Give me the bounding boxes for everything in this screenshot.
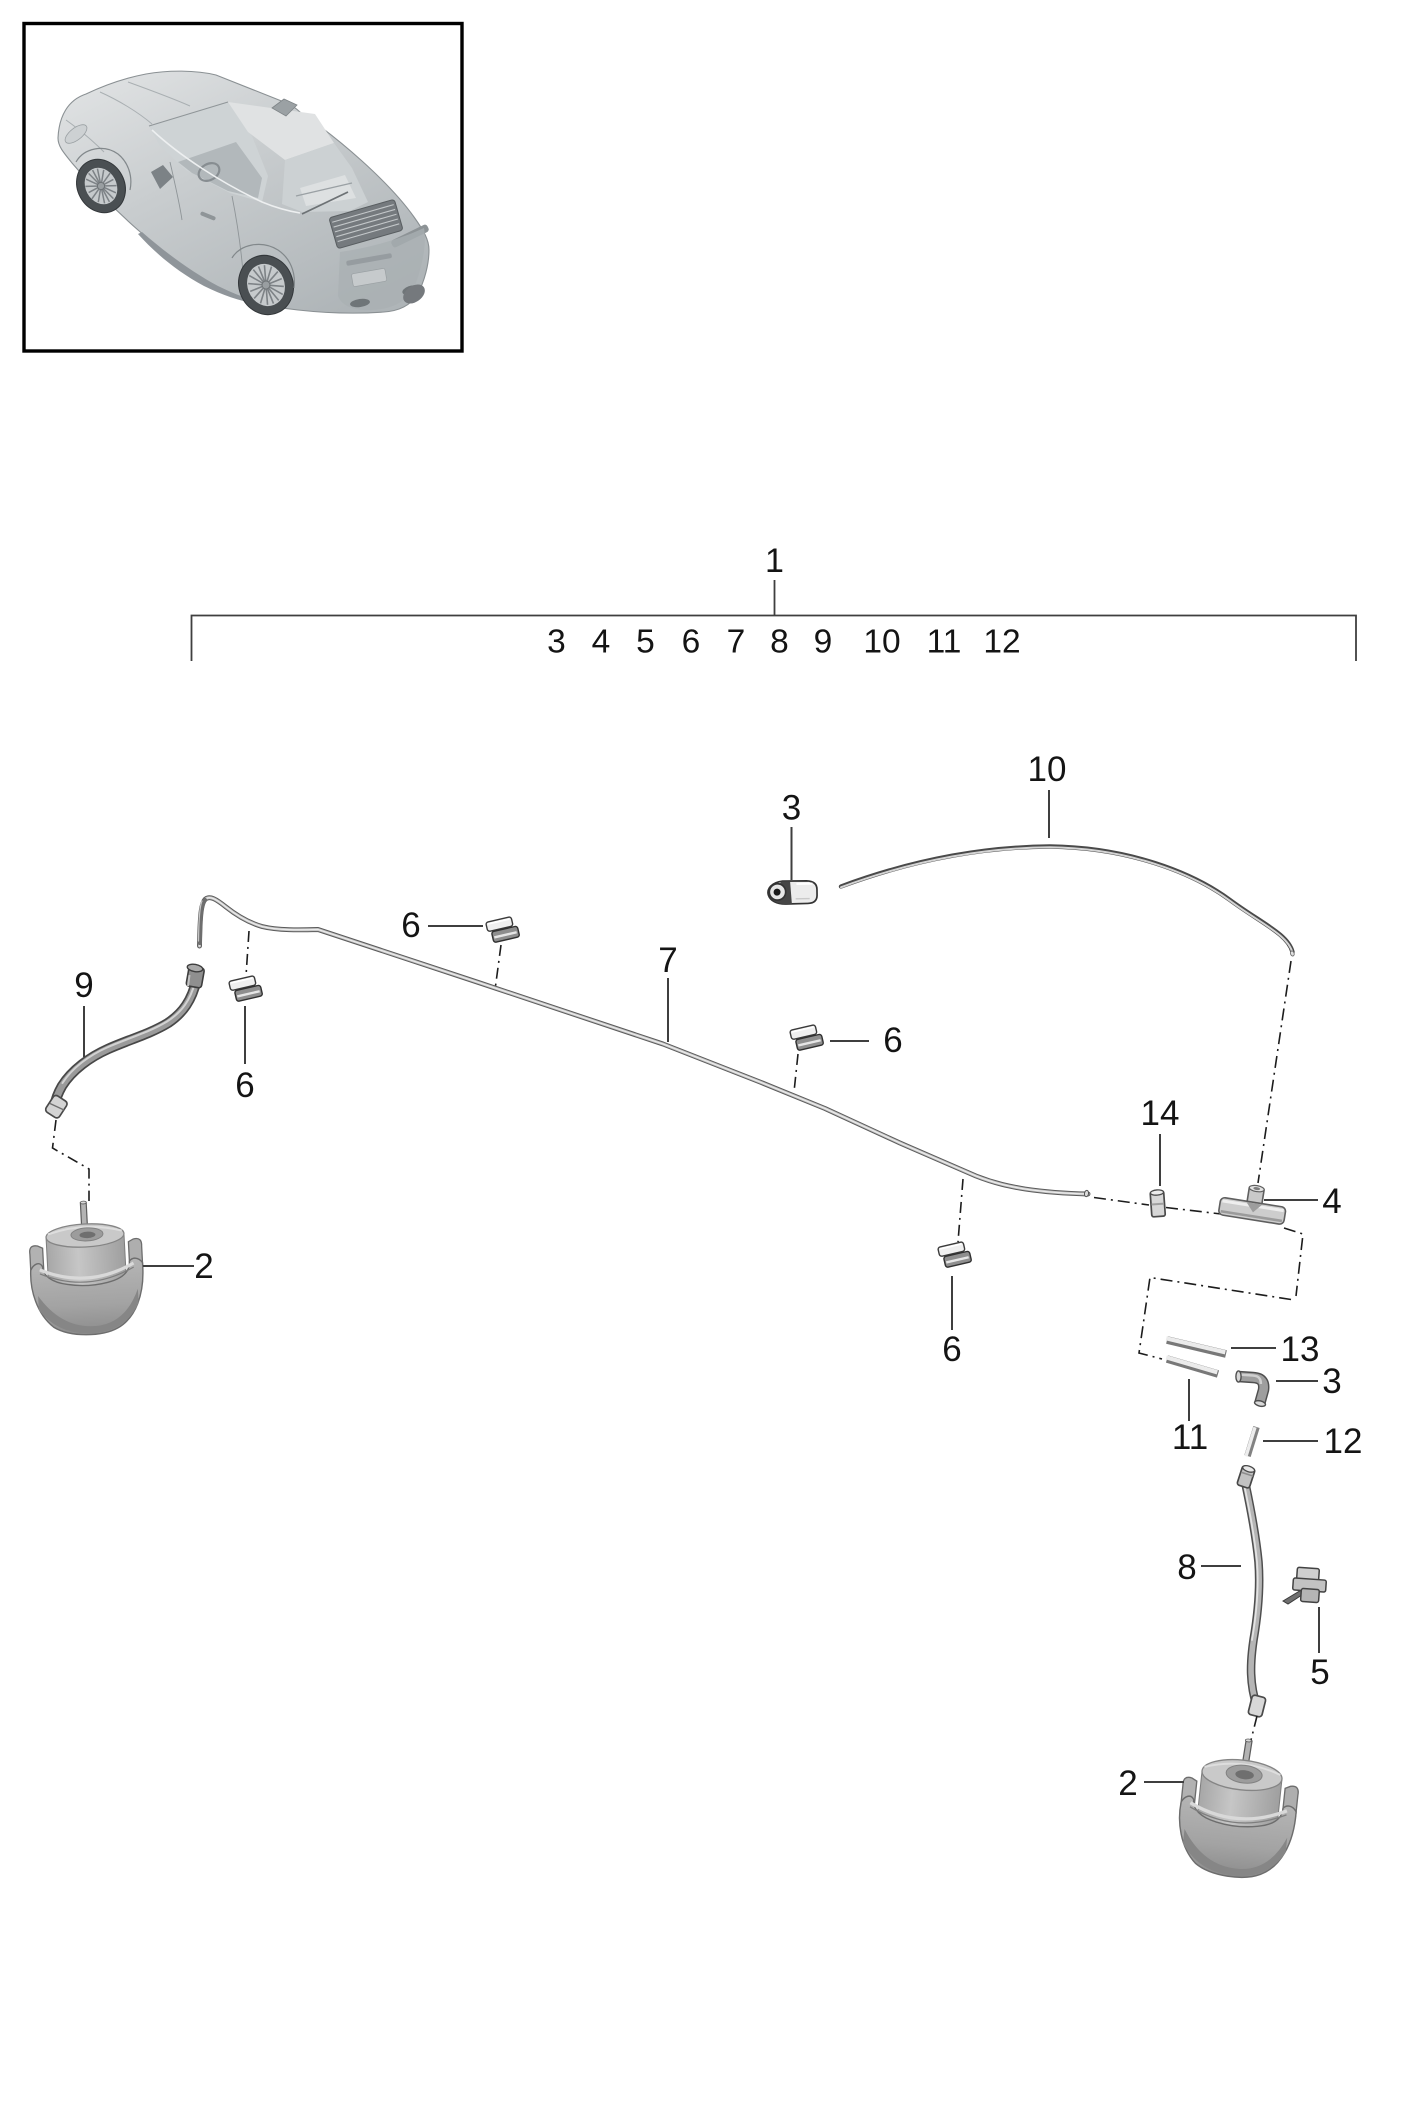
svg-text:7: 7 (727, 624, 746, 661)
svg-text:5: 5 (636, 624, 655, 661)
svg-text:6: 6 (401, 906, 420, 945)
svg-text:7: 7 (658, 941, 677, 980)
svg-text:3: 3 (782, 789, 801, 828)
svg-text:14: 14 (1141, 1094, 1180, 1133)
svg-text:11: 11 (927, 624, 962, 661)
svg-text:6: 6 (682, 624, 701, 661)
svg-text:6: 6 (235, 1066, 254, 1105)
svg-text:8: 8 (1177, 1548, 1196, 1587)
svg-text:9: 9 (74, 966, 93, 1005)
svg-text:10: 10 (863, 624, 900, 661)
svg-text:9: 9 (814, 624, 833, 661)
svg-text:3: 3 (547, 624, 566, 661)
svg-text:10: 10 (1028, 750, 1067, 789)
svg-text:8: 8 (770, 624, 789, 661)
svg-text:12: 12 (983, 624, 1020, 661)
svg-text:3: 3 (1322, 1362, 1341, 1401)
svg-text:13: 13 (1281, 1330, 1320, 1369)
svg-text:5: 5 (1310, 1653, 1329, 1692)
svg-text:11: 11 (1172, 1418, 1208, 1457)
svg-text:6: 6 (942, 1330, 961, 1369)
svg-text:2: 2 (194, 1247, 213, 1286)
svg-text:2: 2 (1118, 1764, 1137, 1803)
svg-text:6: 6 (883, 1021, 902, 1060)
svg-text:4: 4 (592, 624, 611, 661)
svg-text:12: 12 (1324, 1422, 1363, 1461)
svg-text:4: 4 (1322, 1182, 1341, 1221)
svg-text:1: 1 (765, 542, 784, 580)
